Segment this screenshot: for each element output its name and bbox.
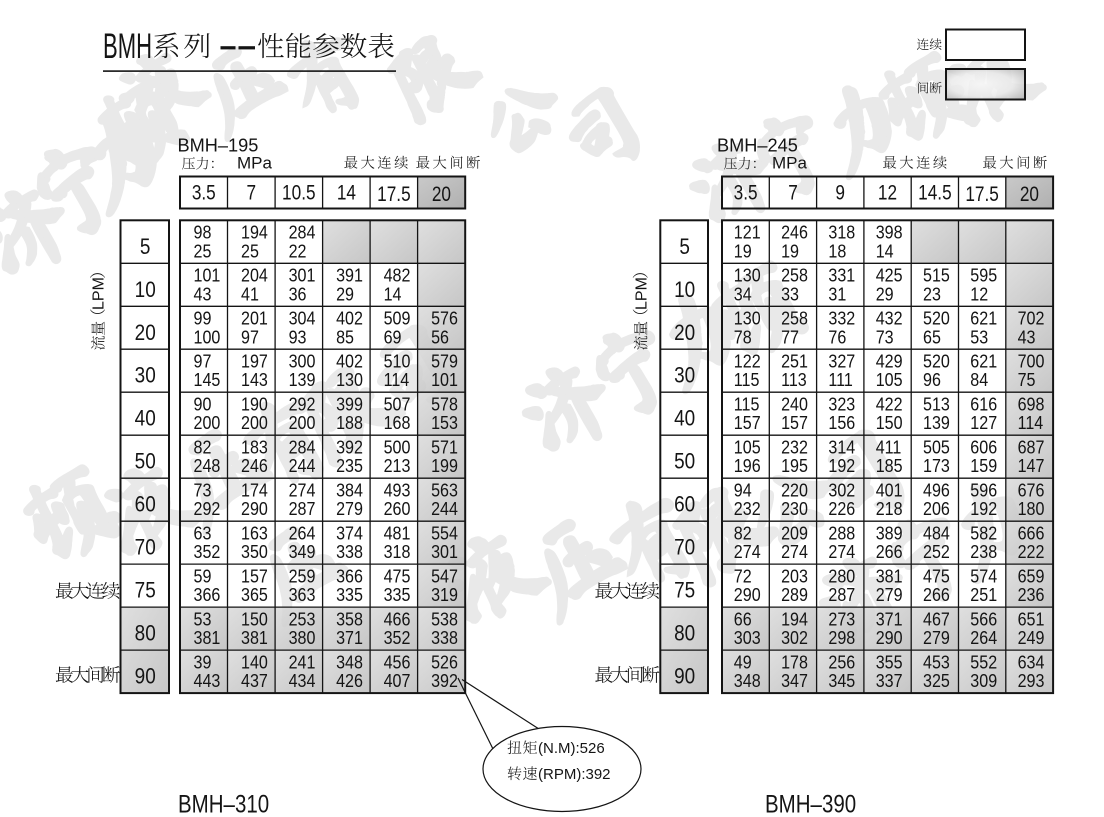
svg-text:168: 168 [384,412,411,433]
svg-text:139: 139 [289,369,316,390]
svg-text:293: 293 [1018,670,1045,691]
svg-text:25: 25 [194,240,212,261]
svg-text:347: 347 [781,670,808,691]
svg-text:100: 100 [194,326,221,347]
svg-text:139: 139 [923,412,950,433]
svg-text:232: 232 [734,498,761,519]
svg-text:14: 14 [337,182,356,205]
svg-text:127: 127 [970,412,997,433]
svg-text:157: 157 [781,412,808,433]
svg-text:437: 437 [241,670,268,691]
svg-text:10.5: 10.5 [282,182,316,205]
svg-text:41: 41 [241,283,259,304]
svg-text:200: 200 [194,412,221,433]
svg-text:380: 380 [289,627,316,648]
svg-text:349: 349 [289,541,316,562]
svg-text:206: 206 [923,498,950,519]
svg-text:60: 60 [135,492,156,517]
svg-text:279: 279 [876,584,903,605]
svg-text:14: 14 [876,240,894,261]
svg-text:226: 226 [828,498,855,519]
svg-text:156: 156 [828,412,855,433]
svg-text:196: 196 [734,455,761,476]
svg-text:43: 43 [194,283,212,304]
svg-text:111: 111 [828,369,852,390]
svg-text:10: 10 [674,277,695,302]
svg-text:5: 5 [140,234,151,259]
svg-text:7: 7 [788,182,798,205]
svg-text:392: 392 [431,670,458,691]
svg-text:218: 218 [876,498,903,519]
svg-text:9: 9 [835,182,845,205]
svg-text:185: 185 [876,455,903,476]
svg-text:350: 350 [241,541,268,562]
svg-text:173: 173 [923,455,950,476]
svg-text:363: 363 [289,584,316,605]
svg-text:279: 279 [336,498,363,519]
svg-text:18: 18 [828,240,846,261]
svg-text:30: 30 [135,363,156,388]
svg-text:12: 12 [970,283,988,304]
svg-text:5: 5 [679,234,690,259]
svg-text:25: 25 [241,240,259,261]
svg-text:192: 192 [828,455,855,476]
svg-text:22: 22 [289,240,307,261]
svg-text:3.5: 3.5 [192,182,216,205]
svg-text:19: 19 [734,240,752,261]
svg-text:287: 287 [289,498,316,519]
svg-text:345: 345 [828,670,855,691]
svg-text:199: 199 [431,455,458,476]
svg-text:352: 352 [384,627,411,648]
svg-text:29: 29 [336,283,354,304]
svg-text:426: 426 [336,670,363,691]
svg-text:292: 292 [194,498,221,519]
svg-text:33: 33 [781,283,799,304]
svg-text:302: 302 [781,627,808,648]
svg-text:264: 264 [970,627,997,648]
svg-text:69: 69 [384,326,402,347]
svg-text:76: 76 [828,326,846,347]
svg-text:290: 290 [876,627,903,648]
svg-text:153: 153 [431,412,458,433]
svg-text:443: 443 [194,670,221,691]
svg-text:260: 260 [384,498,411,519]
svg-text:96: 96 [923,369,941,390]
svg-text:75: 75 [1018,369,1036,390]
svg-text:303: 303 [734,627,761,648]
svg-text:31: 31 [828,283,846,304]
svg-text:29: 29 [876,283,894,304]
svg-text:113: 113 [781,369,807,390]
svg-text:325: 325 [923,670,950,691]
svg-text:279: 279 [923,627,950,648]
svg-text:34: 34 [734,283,752,304]
svg-text:90: 90 [135,664,156,689]
svg-text:BMH–310: BMH–310 [178,790,269,817]
svg-text:20: 20 [674,320,695,345]
svg-text:236: 236 [1018,584,1045,605]
svg-text:23: 23 [923,283,941,304]
svg-text:274: 274 [828,541,855,562]
svg-text:19: 19 [781,240,799,261]
svg-text:50: 50 [135,449,156,474]
svg-text:150: 150 [876,412,903,433]
svg-text:289: 289 [781,584,808,605]
svg-text:75: 75 [674,578,695,603]
svg-text:7: 7 [247,182,257,205]
svg-text:60: 60 [674,492,695,517]
svg-text:407: 407 [384,670,411,691]
svg-text:274: 274 [734,541,761,562]
svg-text:381: 381 [194,627,221,648]
svg-text:157: 157 [734,412,761,433]
svg-text:105: 105 [876,369,903,390]
svg-text:200: 200 [289,412,316,433]
svg-text:222: 222 [1018,541,1045,562]
svg-text:40: 40 [674,406,695,431]
svg-text:366: 366 [194,584,221,605]
svg-text:188: 188 [336,412,363,433]
svg-text:114: 114 [1018,412,1044,433]
svg-text:230: 230 [781,498,808,519]
svg-text:3.5: 3.5 [734,182,758,205]
svg-text:246: 246 [241,455,268,476]
svg-text:143: 143 [241,369,268,390]
svg-text:352: 352 [194,541,221,562]
svg-text:238: 238 [970,541,997,562]
svg-text:335: 335 [384,584,411,605]
svg-text:75: 75 [135,578,156,603]
svg-text:335: 335 [336,584,363,605]
svg-text:30: 30 [674,363,695,388]
svg-text:36: 36 [289,283,307,304]
svg-text:14: 14 [384,283,402,304]
svg-text:298: 298 [828,627,855,648]
svg-text:MPa: MPa [237,154,273,173]
svg-text:434: 434 [289,670,316,691]
svg-text:252: 252 [923,541,950,562]
svg-text:248: 248 [194,455,221,476]
svg-text:93: 93 [289,326,307,347]
svg-text:78: 78 [734,326,752,347]
svg-text:365: 365 [241,584,268,605]
svg-text:235: 235 [336,455,363,476]
svg-text:338: 338 [336,541,363,562]
svg-text:101: 101 [431,369,458,390]
svg-text:145: 145 [194,369,221,390]
svg-text:213: 213 [384,455,411,476]
svg-text:BMH: BMH [103,28,152,66]
svg-text:244: 244 [289,455,316,476]
svg-text:65: 65 [923,326,941,347]
svg-text:381: 381 [241,627,268,648]
svg-text:147: 147 [1018,455,1045,476]
svg-text:318: 318 [384,541,411,562]
svg-text:290: 290 [734,584,761,605]
svg-text:73: 73 [876,326,894,347]
svg-text:266: 266 [923,584,950,605]
svg-text:LPM: LPM [633,277,650,310]
svg-text:56: 56 [431,326,449,347]
svg-text:114: 114 [384,369,410,390]
svg-text:371: 371 [336,627,363,648]
svg-text:BMH–390: BMH–390 [765,790,856,817]
svg-text:251: 251 [970,584,997,605]
svg-text:130: 130 [336,369,363,390]
svg-text:309: 309 [970,670,997,691]
svg-text:200: 200 [241,412,268,433]
svg-text:287: 287 [828,584,855,605]
svg-text:85: 85 [336,326,354,347]
svg-text:274: 274 [781,541,808,562]
svg-text:115: 115 [734,369,760,390]
svg-text:MPa: MPa [772,154,808,173]
svg-text:12: 12 [878,182,897,205]
svg-text:20: 20 [135,320,156,345]
svg-text:249: 249 [1018,627,1045,648]
svg-text:180: 180 [1018,498,1045,519]
svg-text:348: 348 [734,670,761,691]
svg-text:17.5: 17.5 [965,184,999,207]
svg-text:53: 53 [970,326,988,347]
svg-text:195: 195 [781,455,808,476]
svg-text:(RPM):392: (RPM):392 [538,766,611,783]
svg-text:10: 10 [135,277,156,302]
svg-text:244: 244 [431,498,458,519]
svg-text:90: 90 [674,664,695,689]
svg-text:40: 40 [135,406,156,431]
svg-text:BMH–245: BMH–245 [717,136,798,156]
svg-text:20: 20 [1020,184,1039,207]
svg-text:50: 50 [674,449,695,474]
svg-text:77: 77 [781,326,799,347]
svg-text:290: 290 [241,498,268,519]
svg-text:43: 43 [1018,326,1036,347]
svg-text:14.5: 14.5 [918,182,952,205]
svg-text:70: 70 [674,535,695,560]
svg-text:70: 70 [135,535,156,560]
svg-text:337: 337 [876,670,903,691]
svg-text:338: 338 [431,627,458,648]
svg-text:80: 80 [135,621,156,646]
svg-text:319: 319 [431,584,458,605]
svg-text:301: 301 [431,541,458,562]
svg-text:159: 159 [970,455,997,476]
svg-text:17.5: 17.5 [377,184,411,207]
svg-text:84: 84 [970,369,988,390]
svg-text:LPM: LPM [91,277,108,310]
svg-text:(N.M):526: (N.M):526 [538,740,605,757]
svg-text:80: 80 [674,621,695,646]
svg-text:192: 192 [970,498,997,519]
svg-text:20: 20 [432,184,451,207]
svg-text:97: 97 [241,326,259,347]
svg-text:BMH–195: BMH–195 [178,136,259,156]
svg-text:266: 266 [876,541,903,562]
